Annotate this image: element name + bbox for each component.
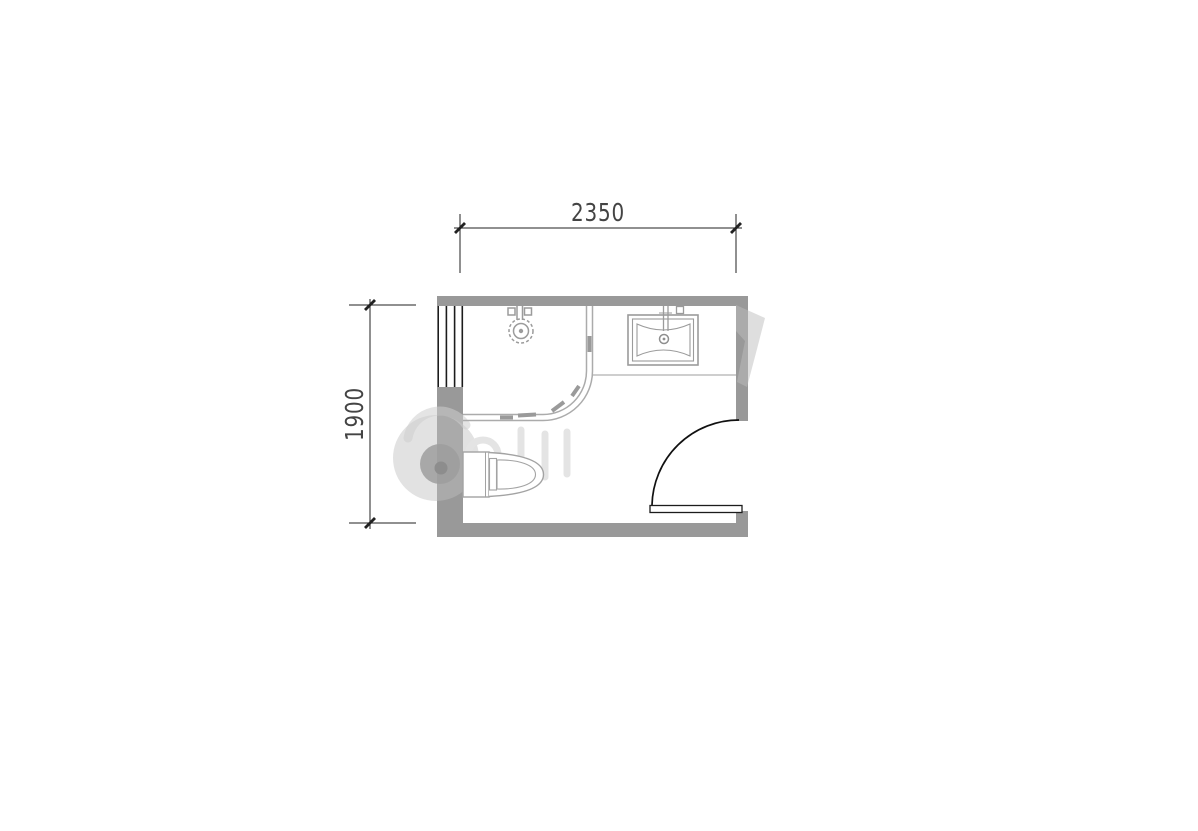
window-opening: [437, 306, 463, 387]
glass-dash: [572, 386, 579, 396]
wall-top: [437, 296, 748, 306]
basin-drain-center: [663, 338, 666, 341]
door-leaf: [650, 506, 742, 513]
wall-right-lower: [736, 511, 748, 537]
faucet-handle: [677, 307, 684, 314]
door: [650, 420, 742, 513]
dimension-width-label: 2350: [571, 198, 625, 227]
shower-valve-handle-left: [508, 308, 515, 315]
shower-enclosure: [463, 306, 593, 421]
wall-bottom: [437, 523, 748, 537]
door-swing-arc: [652, 420, 739, 505]
washbasin: [628, 306, 698, 365]
shower-head-icon: [508, 306, 533, 343]
shower-glass-dashes: [500, 336, 590, 418]
glass-dash: [518, 415, 536, 416]
shower-rose-center: [519, 329, 523, 333]
toilet-seat-hinge: [490, 459, 497, 491]
toilet: [463, 452, 544, 497]
watermark-swirl-dot: [435, 462, 448, 475]
bathroom-floor-plan: 2350 1900: [0, 0, 1198, 831]
dimension-height-label: 1900: [340, 387, 369, 441]
floor-plan-canvas: 2350 1900: [0, 0, 1198, 831]
shower-valve-handle-right: [525, 308, 532, 315]
shower-glass-inner-line: [463, 306, 587, 415]
window: [437, 306, 463, 387]
